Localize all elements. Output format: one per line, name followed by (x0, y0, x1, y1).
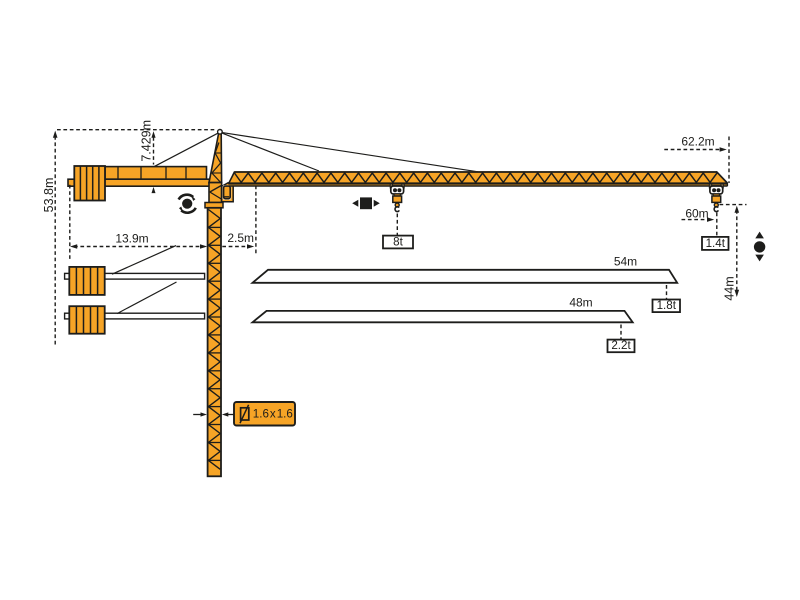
svg-text:2.2t: 2.2t (611, 339, 631, 352)
svg-text:44m: 44m (723, 276, 737, 300)
svg-text:1.8t: 1.8t (657, 299, 677, 312)
svg-text:54m: 54m (614, 254, 637, 268)
svg-text:60m: 60m (685, 206, 708, 220)
svg-text:13.9m: 13.9m (115, 232, 148, 246)
svg-text:48m: 48m (569, 296, 592, 310)
svg-text:7.429m: 7.429m (140, 120, 154, 162)
svg-text:2.5m: 2.5m (227, 231, 254, 245)
svg-text:53.8m: 53.8m (42, 178, 56, 213)
svg-text:62.2m: 62.2m (681, 135, 714, 149)
svg-text:1.4t: 1.4t (706, 237, 726, 250)
svg-text:8t: 8t (393, 235, 403, 248)
svg-text:1.6x1.6: 1.6x1.6 (253, 408, 293, 421)
